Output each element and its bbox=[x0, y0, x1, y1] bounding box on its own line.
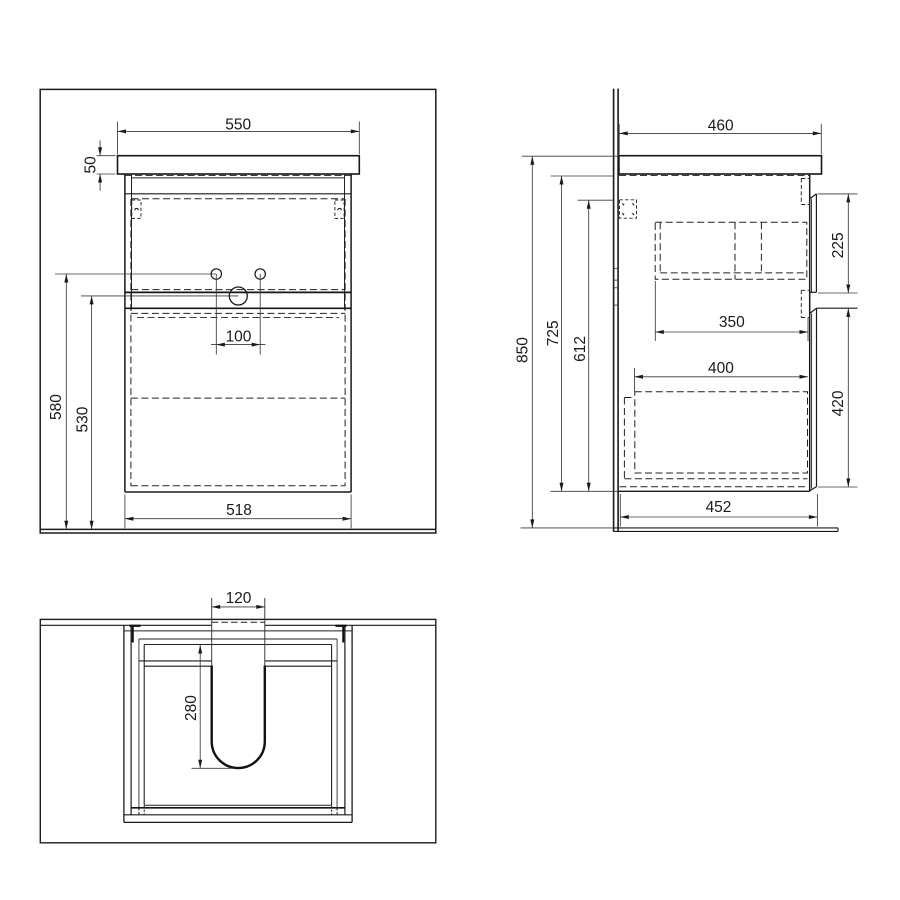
svg-text:420: 420 bbox=[830, 390, 847, 416]
svg-text:725: 725 bbox=[545, 320, 562, 346]
svg-text:120: 120 bbox=[226, 590, 252, 607]
svg-text:280: 280 bbox=[183, 695, 200, 721]
svg-text:550: 550 bbox=[225, 116, 251, 133]
svg-text:350: 350 bbox=[719, 314, 745, 331]
svg-text:580: 580 bbox=[48, 394, 65, 420]
svg-text:50: 50 bbox=[82, 156, 99, 174]
svg-text:225: 225 bbox=[830, 232, 847, 258]
svg-text:400: 400 bbox=[708, 360, 734, 377]
svg-text:460: 460 bbox=[708, 118, 734, 135]
svg-text:518: 518 bbox=[226, 502, 252, 519]
svg-text:850: 850 bbox=[514, 337, 531, 363]
svg-text:530: 530 bbox=[74, 406, 91, 432]
svg-text:452: 452 bbox=[706, 499, 732, 516]
svg-text:612: 612 bbox=[572, 336, 589, 362]
svg-text:100: 100 bbox=[226, 328, 252, 345]
